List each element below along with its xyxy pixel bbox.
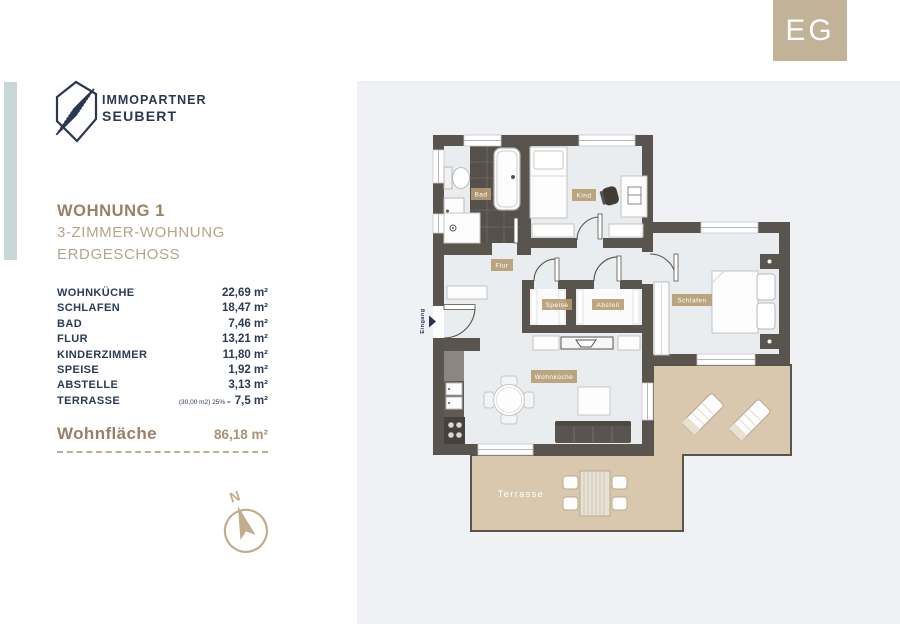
toilet-icon (444, 167, 470, 189)
brand-name: IMMOPARTNER SEUBERT (102, 93, 207, 124)
svg-text:Speise: Speise (546, 302, 569, 309)
area-row: KINDERZIMMER 11,80 m² (57, 349, 268, 364)
room-name: BAD (57, 318, 82, 330)
svg-text:Flur: Flur (495, 263, 509, 270)
bathtub-icon (494, 148, 520, 210)
unit-subtitle-type: 3-ZIMMER-WOHNUNG (57, 224, 225, 241)
room-name: SPEISE (57, 364, 99, 376)
svg-text:Wohnküche: Wohnküche (535, 374, 574, 381)
unit-title: WOHNUNG 1 (57, 202, 165, 221)
accent-bar (4, 82, 17, 260)
room-label-wohnkueche: Wohnküche (531, 370, 577, 383)
room-name: SCHLAFEN (57, 302, 120, 314)
svg-text:Bad: Bad (474, 192, 487, 199)
area-table: WOHNKÜCHE 22,69 m² SCHLAFEN 18,47 m² BAD… (57, 287, 268, 410)
svg-text:Kind: Kind (576, 193, 591, 200)
terrace-table-icon (580, 471, 610, 516)
area-row: ABSTELLE 3,13 m² (57, 379, 268, 394)
compass-north-label: N (228, 487, 243, 505)
total-label: Wohnfläche (57, 424, 157, 444)
room-name: KINDERZIMMER (57, 349, 147, 361)
coffee-table-icon (578, 387, 610, 415)
hall-console-icon (447, 286, 487, 299)
area-row: FLUR 13,21 m² (57, 333, 268, 348)
room-area: 18,47 m² (222, 302, 268, 314)
room-area: (30,00 m2) 25% =7,5 m² (179, 395, 268, 407)
floor-plan: Terrasse (418, 128, 805, 538)
sofa-icon (555, 421, 631, 443)
area-row: WOHNKÜCHE 22,69 m² (57, 287, 268, 302)
entrance-label: Eingang (420, 308, 426, 333)
room-label-kind: Kind (572, 189, 596, 201)
brand-line2: SEUBERT (102, 108, 207, 124)
room-name: TERRASSE (57, 395, 120, 407)
area-row: SPEISE 1,92 m² (57, 364, 268, 379)
immopartner-logo-icon (55, 80, 105, 150)
room-name: ABSTELLE (57, 379, 118, 391)
shower-icon (444, 213, 480, 243)
single-bed-icon (530, 147, 567, 218)
wardrobe-icon (654, 282, 669, 355)
compass-icon: N (205, 480, 285, 572)
floorplan-page: EG IMMOPARTNER SEUBERT WOHNUNG 1 3-ZIMME… (0, 0, 900, 624)
area-row: SCHLAFEN 18,47 m² (57, 302, 268, 317)
room-area: 11,80 m² (223, 349, 268, 361)
room-label-flur: Flur (491, 259, 513, 271)
room-name: WOHNKÜCHE (57, 287, 135, 299)
svg-text:Abstell: Abstell (596, 302, 619, 309)
terrace-calculation-note: (30,00 m2) 25% = (179, 399, 231, 406)
total-area-row: Wohnfläche 86,18 m² (57, 424, 268, 444)
total-area: 86,18 m² (214, 427, 268, 442)
room-area: 13,21 m² (222, 333, 268, 345)
room-area: 3,13 m² (228, 379, 268, 391)
room-name: FLUR (57, 333, 88, 345)
brand-line1: IMMOPARTNER (102, 93, 207, 107)
stove-icon (444, 417, 465, 444)
terrace-area: 7,5 m² (235, 395, 268, 407)
room-label-terrasse: Terrasse (498, 489, 545, 499)
unit-subtitle-floor: ERDGESCHOSS (57, 246, 180, 263)
desk-icon (621, 176, 647, 217)
room-label-speise: Speise (542, 299, 572, 310)
room-area: 7,46 m² (228, 318, 268, 330)
room-area: 1,92 m² (228, 364, 268, 376)
room-area: 22,69 m² (222, 287, 268, 299)
room-label-abstell: Abstell (592, 299, 624, 310)
room-label-bad: Bad (471, 188, 491, 200)
dashed-divider (57, 451, 268, 453)
area-row: BAD 7,46 m² (57, 318, 268, 333)
svg-text:Schlafen: Schlafen (677, 298, 706, 305)
room-label-schlafen: Schlafen (672, 294, 712, 306)
sideboard-icon (533, 336, 640, 350)
area-row-terrasse: TERRASSE (30,00 m2) 25% =7,5 m² (57, 395, 268, 410)
floor-badge: EG (773, 0, 847, 61)
